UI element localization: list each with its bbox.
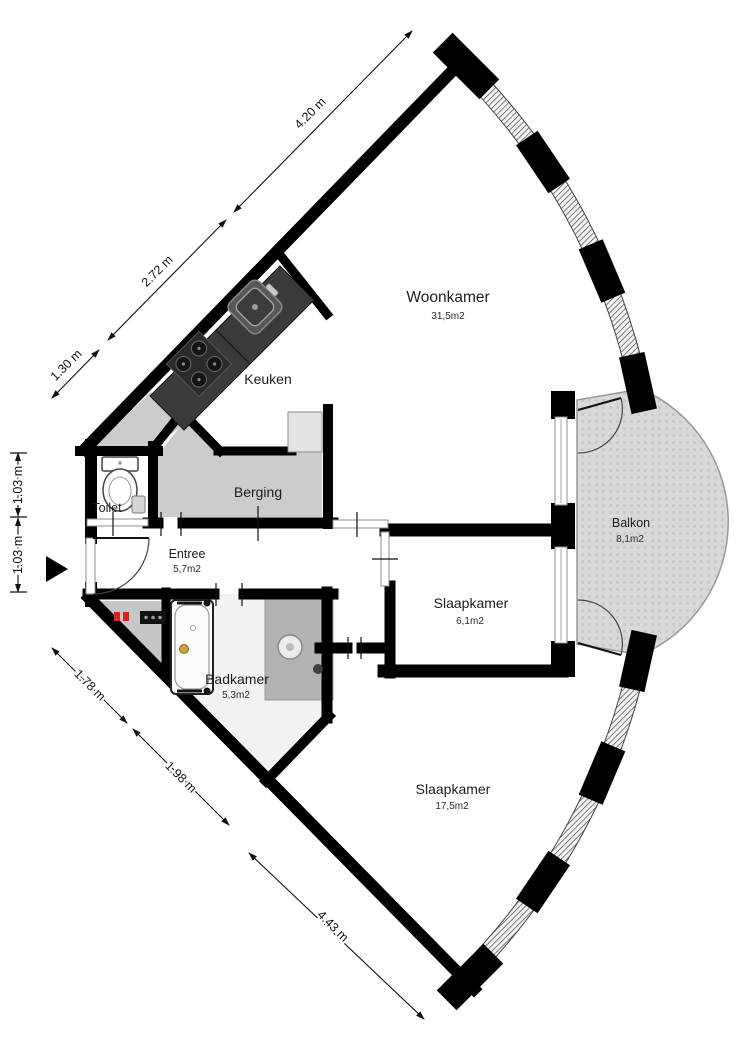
dim-label-103a: 1.03 m xyxy=(11,466,25,504)
interior-walls xyxy=(80,255,575,781)
toilet-door-opening xyxy=(87,519,148,526)
dim-label-443: 4.43 m xyxy=(314,908,351,945)
area-slaapkamer-2: 17,5m2 xyxy=(435,801,469,812)
area-balkon: 8,1m2 xyxy=(616,534,644,545)
dim-label-420: 4.20 m xyxy=(292,95,329,132)
front-door-arc xyxy=(93,538,149,594)
area-badkamer: 5,3m2 xyxy=(222,690,250,701)
fridge-icon xyxy=(288,412,322,452)
dim-label-272: 2.72 m xyxy=(139,253,176,290)
label-keuken: Keuken xyxy=(244,371,291,387)
label-entree: Entree xyxy=(169,547,206,561)
tub-faucet-icon xyxy=(180,645,189,654)
toilet-bin-icon xyxy=(132,496,145,513)
floorplan-canvas: 4.20 m 2.72 m 1.30 m 1.03 m 1.03 m 1.78 … xyxy=(0,0,743,1050)
balkon-floor xyxy=(577,389,728,655)
area-entree: 5,7m2 xyxy=(173,564,201,575)
label-badkamer: Badkamer xyxy=(205,671,269,687)
entrance-arrow-icon xyxy=(46,556,68,582)
floorplan-drawing: 4.20 m 2.72 m 1.30 m 1.03 m 1.03 m 1.78 … xyxy=(0,0,743,1050)
front-door-threshold xyxy=(86,538,95,594)
kitchen-pass-opening xyxy=(333,520,388,528)
label-berging: Berging xyxy=(234,484,282,500)
window-band-top xyxy=(458,61,646,385)
floor-fills xyxy=(94,389,728,782)
label-slaapkamer-2: Slaapkamer xyxy=(416,781,491,797)
dim-label-178: 1.78 m xyxy=(71,667,108,704)
dim-label-198: 1.98 m xyxy=(162,759,199,796)
label-woonkamer: Woonkamer xyxy=(406,289,489,306)
area-slaapkamer-1: 6,1m2 xyxy=(456,616,484,627)
shower-drain-icon xyxy=(313,664,323,674)
dim-label-103b: 1.03 m xyxy=(11,536,25,574)
label-balkon: Balkon xyxy=(612,516,650,530)
window-band-bottom xyxy=(458,659,646,983)
label-toilet: Toilet xyxy=(92,501,122,515)
area-woonkamer: 31,5m2 xyxy=(431,311,465,322)
label-slaapkamer-1: Slaapkamer xyxy=(434,595,509,611)
dim-label-130: 1.30 m xyxy=(48,347,85,384)
